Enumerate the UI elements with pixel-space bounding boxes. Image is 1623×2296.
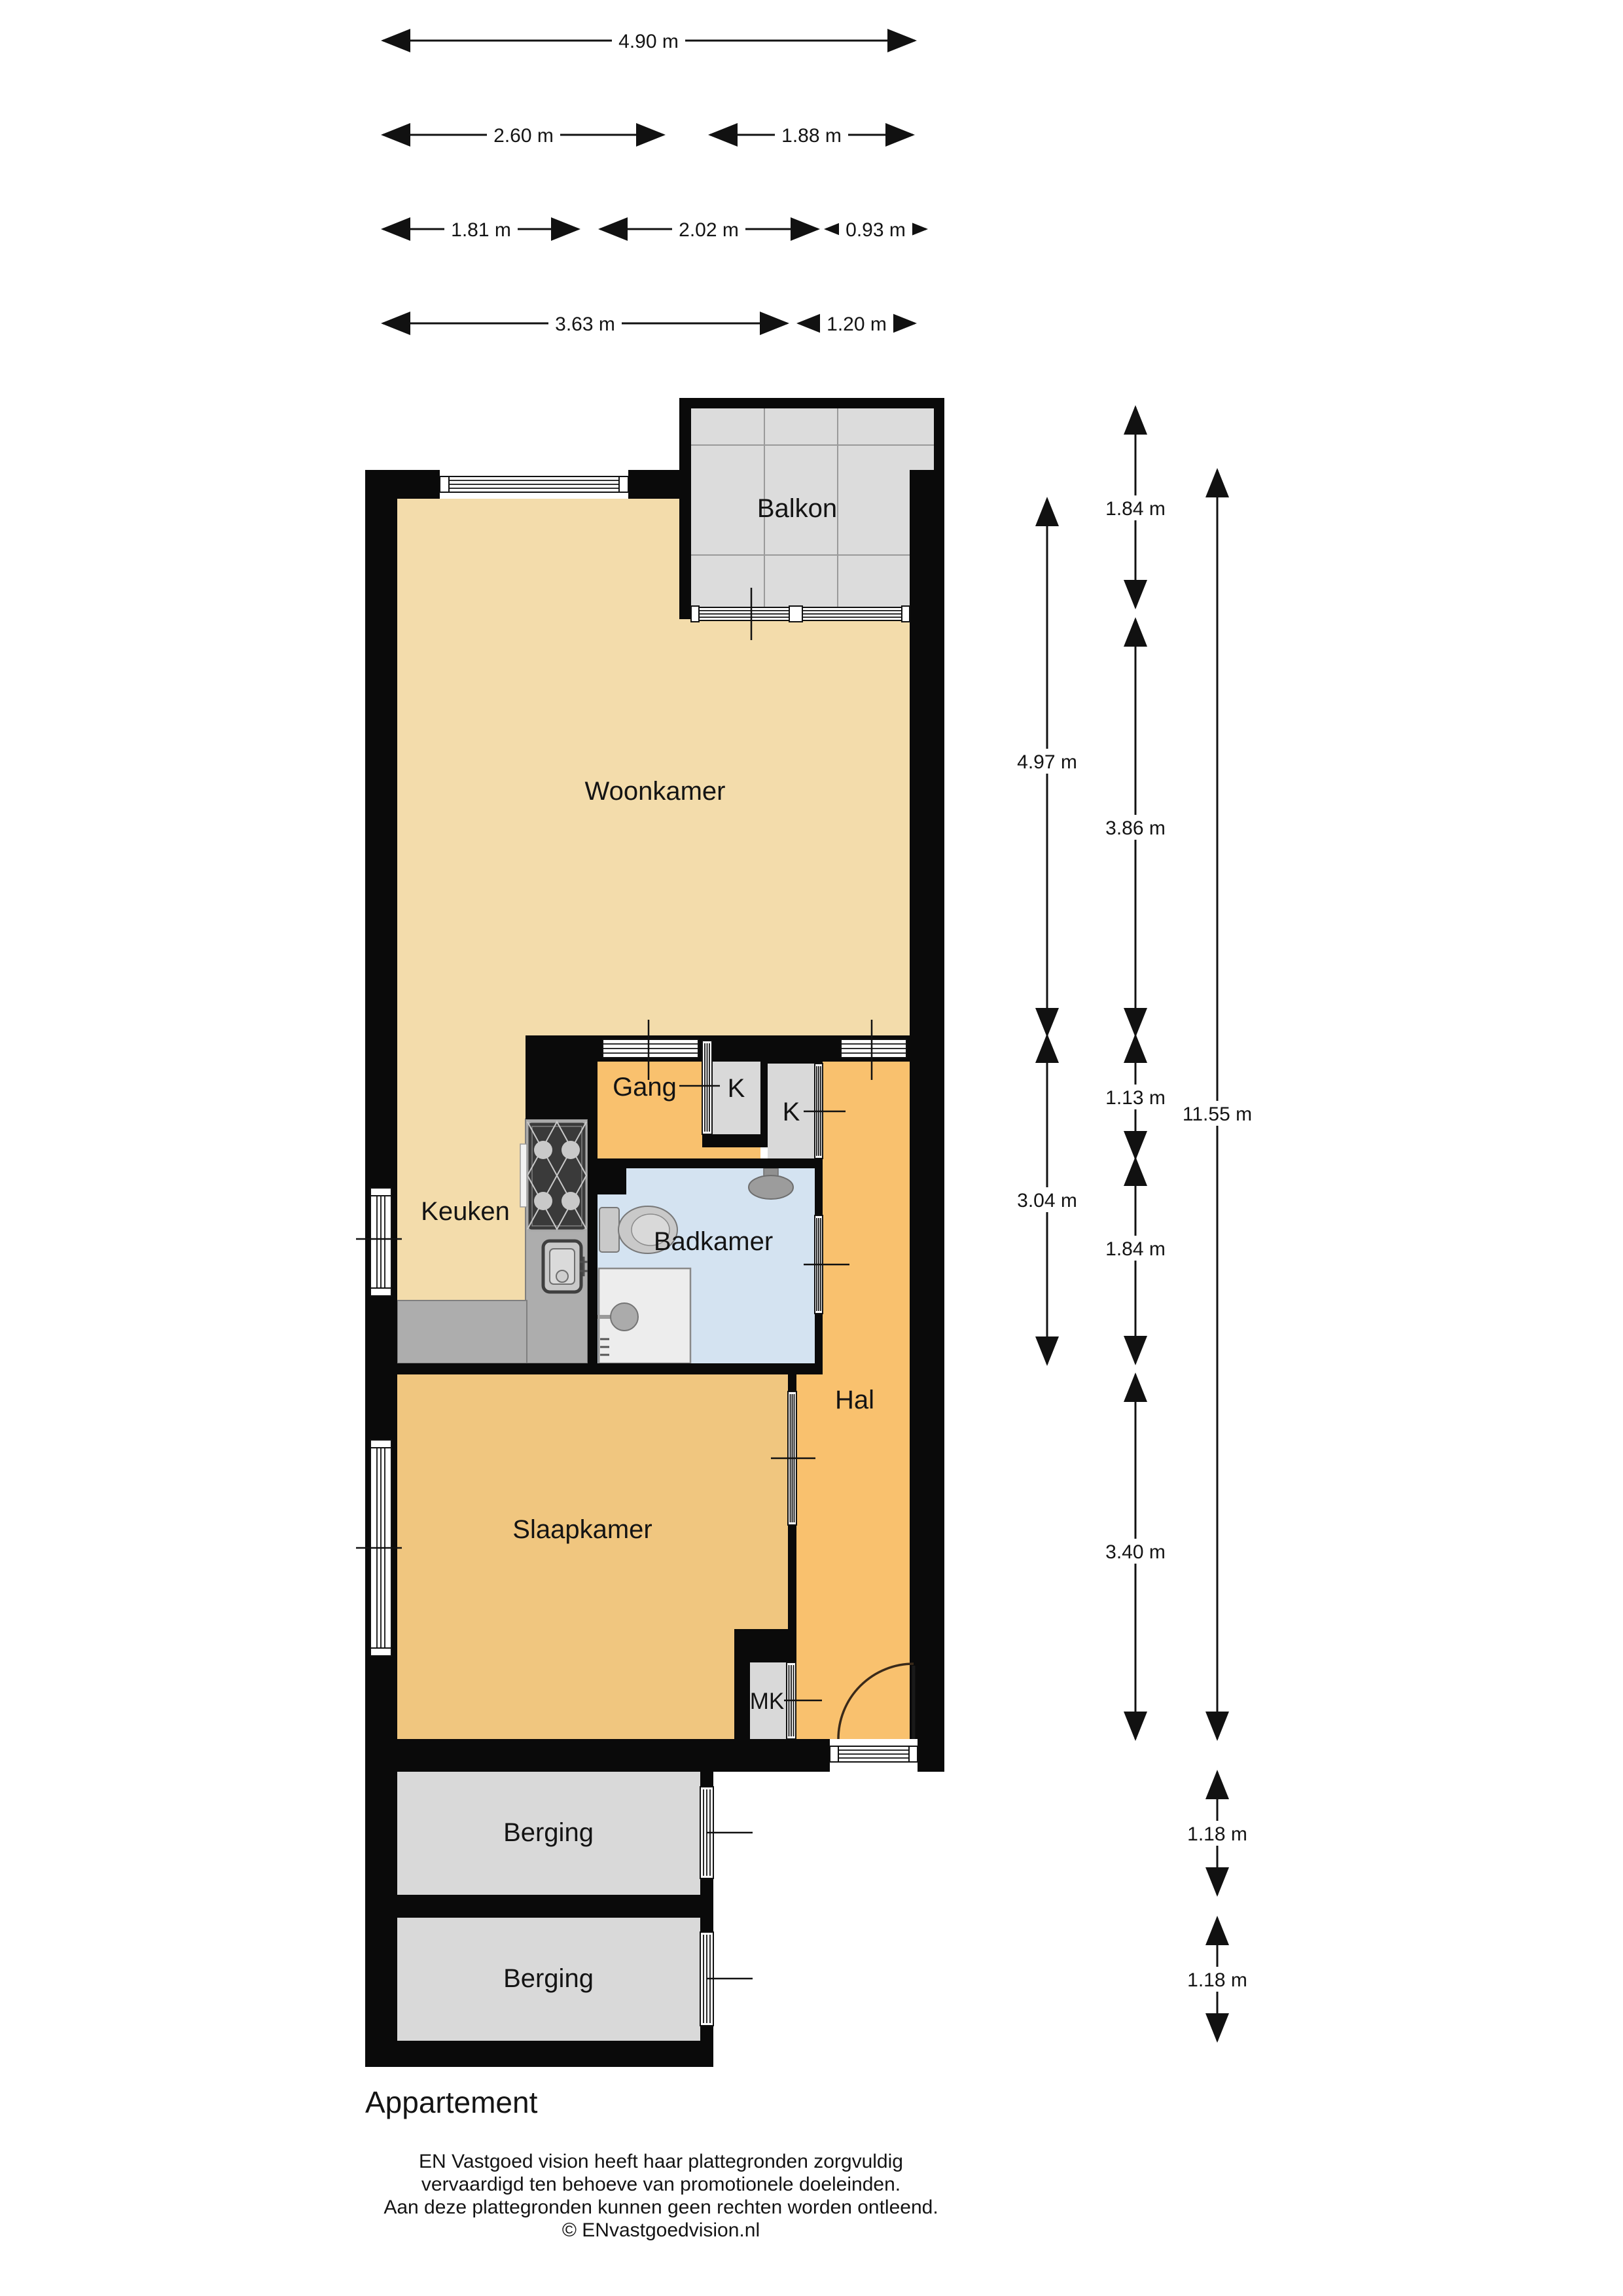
hal-floor-lower xyxy=(796,1374,910,1739)
wall-top-right-stub xyxy=(628,470,679,499)
copyright-line: © ENvastgoedvision.nl xyxy=(562,2219,760,2241)
window-cap xyxy=(370,1288,391,1296)
gang-label: Gang xyxy=(613,1073,677,1102)
hal-floor-upper xyxy=(823,1062,910,1374)
stove-burner xyxy=(562,1192,580,1210)
stove-burner xyxy=(534,1192,552,1210)
washbasin-icon xyxy=(749,1175,793,1199)
window-cap xyxy=(370,1440,391,1448)
dim-label: 4.90 m xyxy=(618,31,679,52)
hal-label: Hal xyxy=(835,1386,874,1414)
balkon-label: Balkon xyxy=(757,494,837,523)
dim-label: 3.40 m xyxy=(1105,1541,1166,1563)
counter-strip-bottom xyxy=(397,1300,527,1363)
dim-label: 1.20 m xyxy=(827,314,887,335)
wall-gang-badkamer xyxy=(597,1158,823,1168)
window-mullion xyxy=(789,606,802,622)
wall-kast1-bottom xyxy=(702,1134,767,1147)
dim-label: 3.63 m xyxy=(555,314,615,335)
berging2-label: Berging xyxy=(503,1964,594,1993)
dim-label: 1.88 m xyxy=(781,125,842,147)
keuken-floor xyxy=(397,1035,526,1300)
dim-label: 0.93 m xyxy=(846,219,906,241)
window-cap xyxy=(370,1648,391,1656)
wall-counter-stub xyxy=(526,1035,597,1119)
wall-berging2-stub-top xyxy=(700,1918,713,1932)
window-cap xyxy=(440,476,449,492)
toilet-tank xyxy=(599,1208,619,1252)
dim-label: 1.84 m xyxy=(1105,498,1166,520)
disclaimer-line-1: EN Vastgoed vision heeft haar plattegron… xyxy=(419,2151,903,2172)
wall-right xyxy=(910,470,944,1772)
berging1-label: Berging xyxy=(503,1818,594,1847)
wall-berging1-stub-top xyxy=(700,1772,713,1787)
wall-berging2-stub-bottom xyxy=(700,2026,713,2041)
plan-title: Appartement xyxy=(365,2085,538,2119)
wall-toilet-nook xyxy=(597,1168,626,1194)
wall-mk-left xyxy=(734,1662,750,1739)
shower-head-icon xyxy=(611,1303,638,1331)
dim-label: 1.18 m xyxy=(1187,1969,1247,1991)
slaapkamer-label: Slaapkamer xyxy=(512,1515,652,1544)
floorplan-page: Balkon Woonkamer Gang K K Keuken Badkame… xyxy=(0,0,1623,2296)
mk-label: MK xyxy=(750,1689,785,1714)
woonkamer-label: Woonkamer xyxy=(585,777,726,806)
window-cap xyxy=(909,1746,918,1762)
dim-label: 1.18 m xyxy=(1187,1823,1247,1845)
woonkamer-floor xyxy=(397,499,679,1035)
balcony-wall-top xyxy=(679,398,944,408)
window-cap xyxy=(619,476,628,492)
dim-label: 1.13 m xyxy=(1105,1087,1166,1109)
window-cap xyxy=(691,606,699,622)
floorplan-drawing: Balkon Woonkamer Gang K K Keuken Badkame… xyxy=(0,0,1623,2296)
stove-burner xyxy=(562,1141,580,1159)
wall-slaapkamer-top xyxy=(365,1363,823,1374)
balcony-wall-left xyxy=(679,398,691,619)
window-cap xyxy=(370,1188,391,1196)
dim-label: 3.86 m xyxy=(1105,817,1166,839)
wall-mk-top xyxy=(734,1629,796,1662)
kast2-label: K xyxy=(783,1098,800,1126)
wall-berging1-stub-bottom xyxy=(700,1878,713,1895)
stove-handle xyxy=(520,1144,527,1207)
wall-keuken-badkamer xyxy=(588,1119,597,1363)
dim-label: 2.02 m xyxy=(679,219,739,241)
dim-label: 4.97 m xyxy=(1017,751,1077,773)
window-cap xyxy=(830,1746,838,1762)
slaapkamer-floor xyxy=(397,1374,788,1739)
dimensions-right: 1.84 m 3.86 m 1.13 m 1.84 m 3.40 m 4.97 … xyxy=(1010,407,1259,2041)
dim-label: 3.04 m xyxy=(1017,1190,1077,1211)
disclaimer-line-3: Aan deze plattegronden kunnen geen recht… xyxy=(383,2197,938,2218)
kast1-label: K xyxy=(728,1074,745,1103)
wall-top-left xyxy=(365,470,440,499)
dimensions-top: 4.90 m 2.60 m 1.88 m 1.81 m 2.02 m 0.93 … xyxy=(383,27,926,336)
badkamer-label: Badkamer xyxy=(654,1227,773,1256)
dim-label: 11.55 m xyxy=(1183,1103,1252,1125)
dim-label: 1.84 m xyxy=(1105,1238,1166,1260)
wall-berging-bottom xyxy=(365,2041,713,2067)
keuken-label: Keuken xyxy=(421,1197,510,1226)
footer: Appartement EN Vastgoed vision heeft haa… xyxy=(365,2085,938,2241)
dim-label: 2.60 m xyxy=(493,125,554,147)
woonkamer-floor-right xyxy=(679,619,910,1035)
dim-label: 1.81 m xyxy=(451,219,511,241)
stove-burner xyxy=(534,1141,552,1159)
kitchen-sink-drain xyxy=(556,1270,568,1282)
wall-berging-middle xyxy=(365,1895,713,1918)
window-cap xyxy=(902,606,910,622)
disclaimer-line-2: vervaardigd ten behoeve van promotionele… xyxy=(421,2174,901,2195)
wall-kast2-top xyxy=(760,1054,823,1064)
balcony-wall-right xyxy=(934,398,944,470)
